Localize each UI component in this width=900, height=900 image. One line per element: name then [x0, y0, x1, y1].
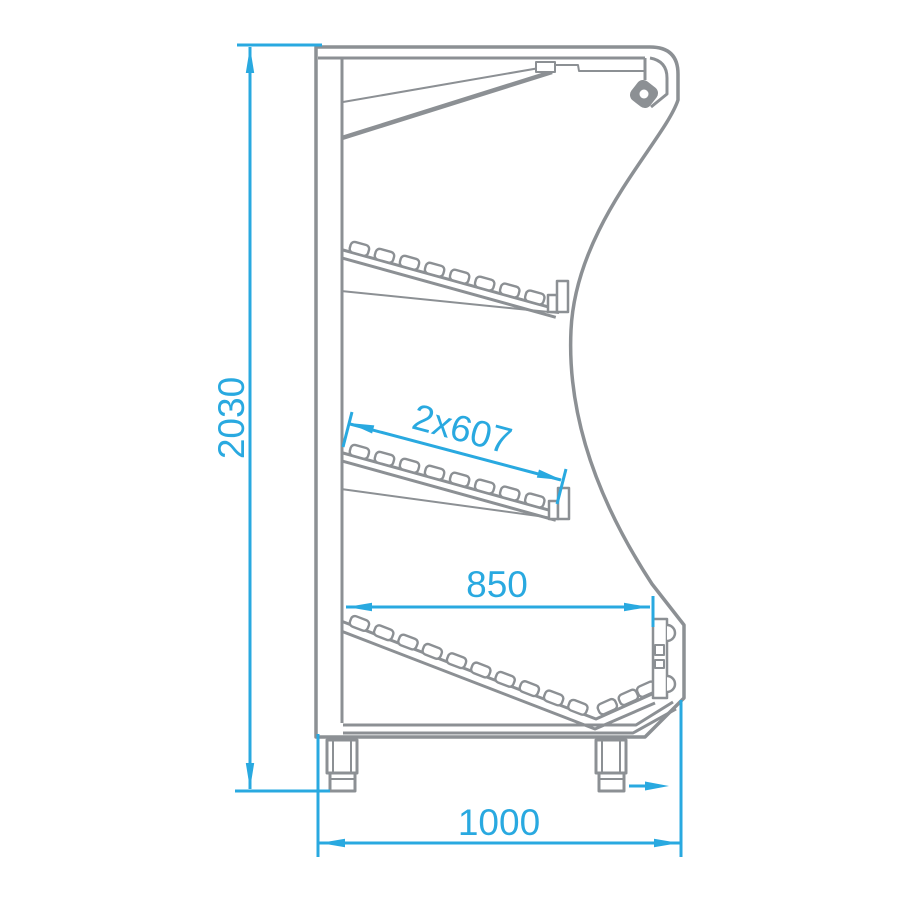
- display-cabinet-section-drawing: 2030 2x607 850 1000: [0, 0, 900, 900]
- front-width-label: 850: [466, 564, 528, 605]
- airflow-arrow-icon: [645, 782, 669, 791]
- shelf-1-front-rail: [548, 295, 557, 312]
- bumper-roller-bottom: [667, 676, 675, 692]
- dimension-overall-height: 2030: [211, 45, 330, 791]
- bumper-clip-2: [655, 660, 664, 668]
- overall-depth-label: 1000: [458, 802, 540, 843]
- foot-right-body: [596, 740, 626, 773]
- arrowhead-down-icon: [246, 763, 254, 789]
- airflow-indicator: [629, 782, 669, 791]
- foot-left-body: [327, 740, 357, 773]
- foot-right: [596, 740, 626, 791]
- bumper-rail: [653, 619, 667, 698]
- overall-height-label: 2030: [211, 377, 252, 459]
- arrowhead-right-icon: [654, 839, 679, 847]
- bumper-clip-1: [655, 645, 664, 655]
- lamp-hole: [640, 90, 649, 99]
- deflector-end-cap: [536, 62, 555, 72]
- foot-left-adjuster: [330, 773, 355, 791]
- foot-left: [327, 740, 357, 791]
- technical-drawing-page: 2030 2x607 850 1000: [0, 0, 900, 900]
- arrowhead-left-icon: [320, 839, 345, 847]
- arrowhead-up-icon: [246, 47, 254, 73]
- shelf-1-price-rail: [557, 281, 568, 312]
- bumper-roller-top: [667, 625, 675, 641]
- foot-right-adjuster: [599, 773, 624, 791]
